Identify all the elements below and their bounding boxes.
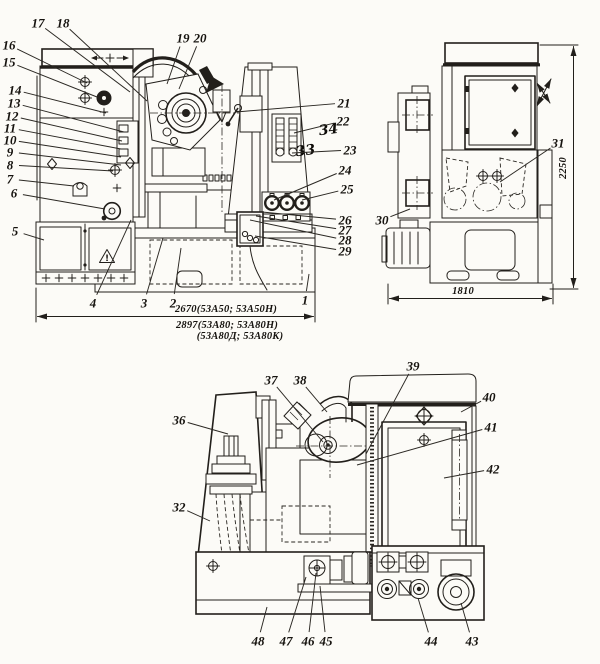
side-gearbox: [442, 150, 537, 218]
callout-label-42: 42: [486, 462, 501, 477]
screw-strip: [36, 272, 135, 284]
callout-label-7: 7: [7, 172, 14, 187]
front-view: !: [36, 49, 315, 322]
callout-label-24: 24: [338, 163, 353, 178]
dimension-side-height: 2250: [558, 157, 569, 180]
callout-label-43: 43: [465, 634, 480, 649]
callout-label-30: 30: [375, 213, 390, 228]
callout-label-17: 17: [32, 16, 46, 31]
callout-label-12: 12: [6, 109, 20, 124]
callout-label-44: 44: [424, 634, 439, 649]
electrical-cabinet-doors: !: [36, 222, 135, 284]
dimension-front-width: 2670(53А50; 53А50Н): [174, 304, 277, 315]
callout-label-4: 4: [89, 296, 97, 311]
side-column-body: [442, 43, 551, 150]
handwritten-note-33: 33: [295, 142, 317, 160]
control-knob-panel: [262, 192, 310, 221]
rear-base-right: [372, 546, 484, 620]
callout-label-36: 36: [172, 413, 187, 428]
dark-knob: [97, 91, 112, 106]
rear-base-left: [196, 552, 372, 614]
machine-diagram: !: [0, 0, 600, 664]
callout-label-15: 15: [3, 55, 17, 70]
callout-label-23: 23: [343, 143, 358, 158]
callout-label-41: 41: [484, 420, 498, 435]
scanned-machine-drawing: !: [0, 0, 600, 664]
callout-label-47: 47: [279, 634, 294, 649]
callout-label-1: 1: [302, 293, 309, 308]
callout-label-48: 48: [251, 634, 266, 649]
callout-label-38: 38: [293, 373, 308, 388]
callout-label-22: 22: [336, 114, 351, 129]
callout-label-25: 25: [340, 182, 355, 197]
callout-label-8: 8: [7, 158, 14, 173]
callout-label-2: 2: [169, 296, 177, 311]
callout-label-16: 16: [3, 38, 17, 53]
callout-label-13: 13: [8, 96, 22, 111]
callout-label-46: 46: [301, 634, 316, 649]
callout-label-37: 37: [264, 373, 279, 388]
door-latch: [73, 183, 87, 197]
callout-label-19: 19: [177, 31, 191, 46]
callout-label-20: 20: [193, 31, 208, 46]
callout-label-29: 29: [338, 244, 353, 259]
callout-label-3: 3: [140, 296, 148, 311]
chain-strip: [366, 404, 378, 566]
callout-label-14: 14: [9, 83, 23, 98]
callout-label-6: 6: [11, 186, 18, 201]
dimension-front-width-alt2: (53А80Д; 53А80К): [197, 331, 284, 342]
callout-label-45: 45: [319, 634, 334, 649]
sight-window: [452, 430, 467, 530]
callout-label-5: 5: [12, 224, 19, 239]
callout-label-18: 18: [57, 16, 71, 31]
callout-label-21: 21: [337, 96, 351, 111]
callout-label-32: 32: [172, 500, 187, 515]
warning-mark: !: [105, 254, 109, 264]
callout-label-39: 39: [406, 359, 421, 374]
callout-label-31: 31: [551, 136, 565, 151]
callout-label-40: 40: [482, 390, 497, 405]
rear-frame: [348, 374, 476, 566]
dimension-front-width-alt: 2897(53А80; 53А80Н): [175, 320, 278, 331]
dimension-side-depth: 1810: [452, 286, 474, 297]
